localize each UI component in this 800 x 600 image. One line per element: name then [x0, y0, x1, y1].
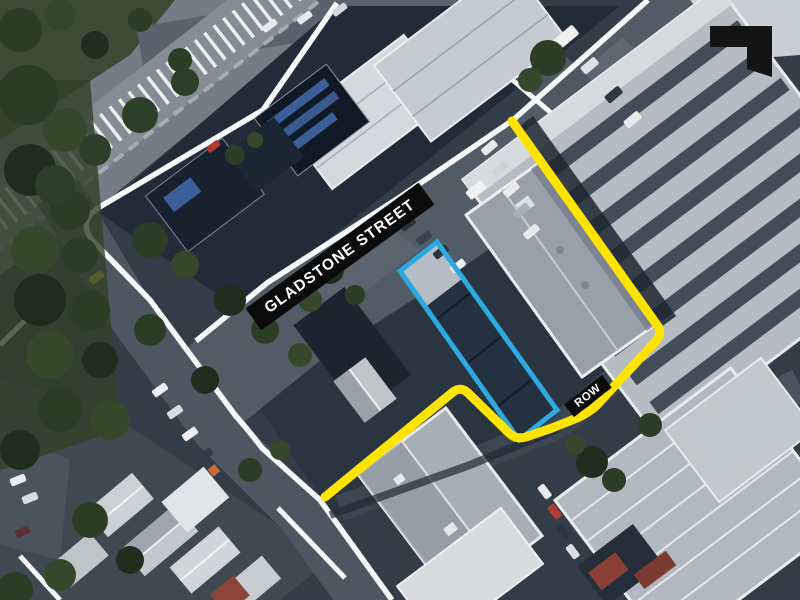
- aerial-property-map: GLADSTONE STREET ROW: [0, 0, 800, 600]
- aerial-photo: [0, 0, 800, 600]
